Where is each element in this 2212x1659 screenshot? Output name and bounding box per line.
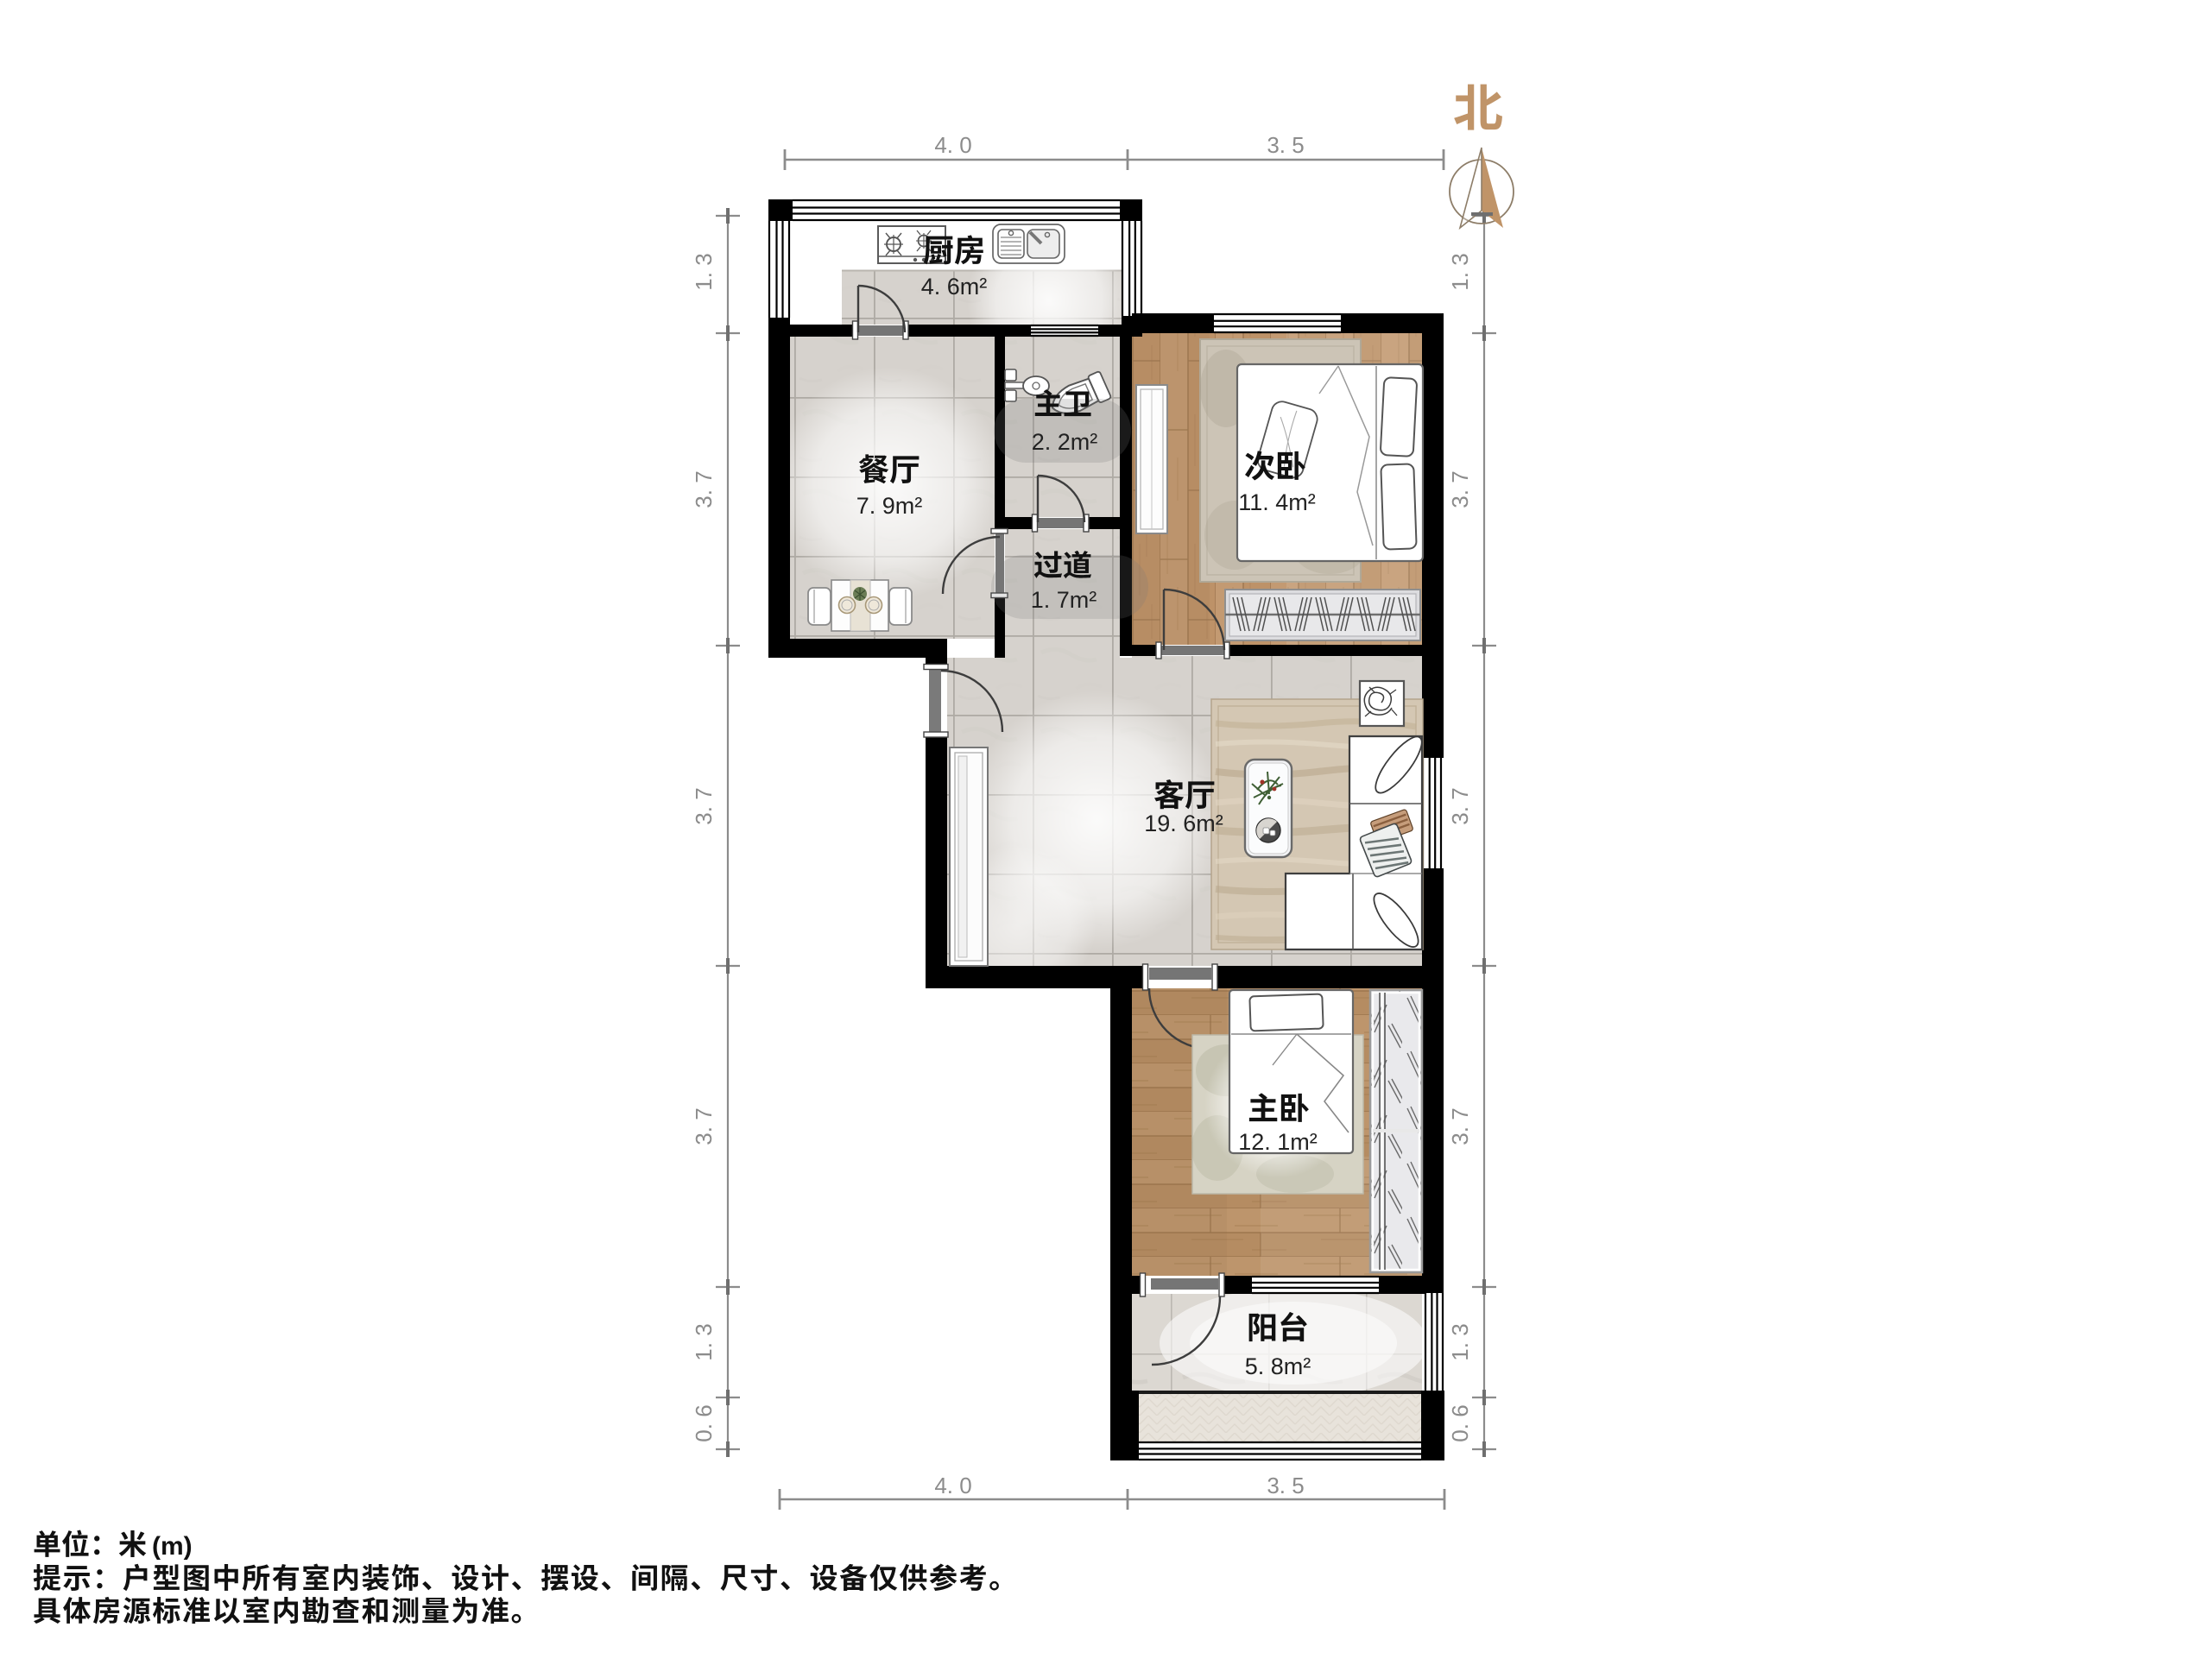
svg-text:1. 3: 1. 3 — [691, 1323, 717, 1360]
svg-text:3. 7: 3. 7 — [691, 1107, 717, 1145]
svg-text:5. 8m²: 5. 8m² — [1245, 1353, 1311, 1379]
svg-text:12. 1m²: 12. 1m² — [1238, 1129, 1318, 1155]
svg-text:1. 7m²: 1. 7m² — [1031, 587, 1097, 613]
svg-text:1. 3: 1. 3 — [691, 253, 717, 290]
svg-text:0. 6: 0. 6 — [1447, 1404, 1473, 1441]
svg-text:1. 3: 1. 3 — [1447, 253, 1473, 290]
svg-text:4. 0: 4. 0 — [934, 132, 971, 158]
svg-text:3. 7: 3. 7 — [1447, 1107, 1473, 1145]
svg-text:2. 2m²: 2. 2m² — [1032, 429, 1098, 455]
svg-text:4. 0: 4. 0 — [934, 1473, 971, 1498]
svg-text:0. 6: 0. 6 — [691, 1404, 717, 1441]
svg-text:4. 6m²: 4. 6m² — [921, 274, 988, 300]
svg-text:7. 9m²: 7. 9m² — [856, 493, 923, 519]
svg-text:19. 6m²: 19. 6m² — [1144, 811, 1223, 836]
svg-text:11. 4m²: 11. 4m² — [1238, 489, 1316, 515]
svg-text:(m): (m) — [152, 1532, 193, 1561]
svg-text:3. 7: 3. 7 — [691, 470, 717, 508]
svg-text:3. 5: 3. 5 — [1267, 132, 1304, 158]
svg-text:3. 7: 3. 7 — [691, 787, 717, 824]
svg-text:1. 3: 1. 3 — [1447, 1323, 1473, 1360]
svg-text:3. 7: 3. 7 — [1447, 470, 1473, 508]
svg-text:3. 7: 3. 7 — [1447, 787, 1473, 824]
svg-text:3. 5: 3. 5 — [1267, 1473, 1304, 1498]
